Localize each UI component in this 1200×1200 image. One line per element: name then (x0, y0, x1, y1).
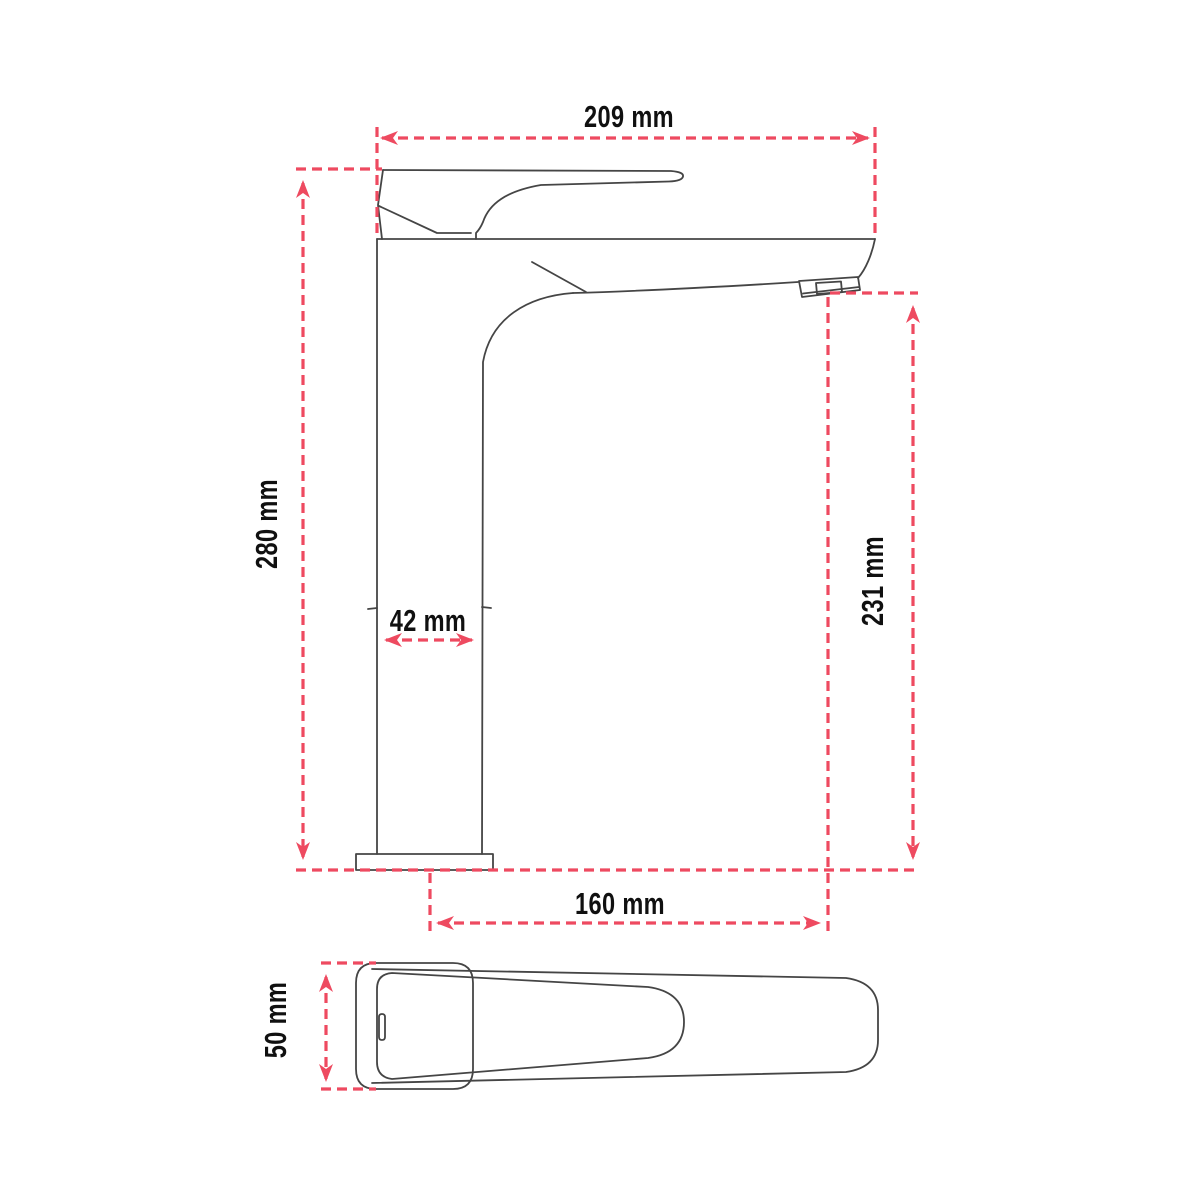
lever-base-crease (379, 206, 471, 233)
dimension-overall-height: 280 mm (249, 169, 382, 860)
faucet-top-view (356, 963, 878, 1089)
dim-280-label: 280 mm (249, 479, 284, 569)
body-top-view (377, 973, 684, 1079)
column-right-edge (482, 293, 573, 854)
spout-right-edge (858, 239, 875, 278)
dim-160-arrow-right (803, 916, 821, 930)
dim-50-label: 50 mm (258, 982, 293, 1059)
faucet-side-view (356, 170, 875, 870)
dimension-spout-height: 231 mm (830, 293, 920, 860)
dimension-body-width: 42 mm (384, 603, 474, 647)
dim-209-arrow-left (380, 131, 398, 145)
dimension-handle-width: 50 mm (258, 963, 376, 1089)
base-plate-top-view (356, 963, 473, 1089)
dim-209-label: 209 mm (584, 99, 674, 134)
dimension-spout-reach: 160 mm (430, 297, 828, 931)
dim-280-arrow-top (296, 180, 310, 198)
dim-231-arrow-top (906, 305, 920, 323)
dim-231-label: 231 mm (855, 536, 890, 626)
dimension-top-width: 209 mm (377, 99, 875, 238)
lever-left-edge (378, 170, 383, 239)
dim-42-label: 42 mm (390, 603, 467, 638)
dim-160-label: 160 mm (575, 886, 665, 921)
spout-crease (532, 262, 586, 292)
spout-slot-top-view (379, 1014, 385, 1040)
spout-underside (573, 282, 798, 293)
dim-50-arrow-top (319, 974, 333, 992)
faucet-dimension-diagram: 209 mm 280 mm 42 mm 231 mm (0, 0, 1200, 1200)
technical-drawing-canvas: 209 mm 280 mm 42 mm 231 mm (0, 0, 1200, 1200)
dim-160-arrow-left (436, 916, 454, 930)
base-flange (356, 854, 493, 870)
